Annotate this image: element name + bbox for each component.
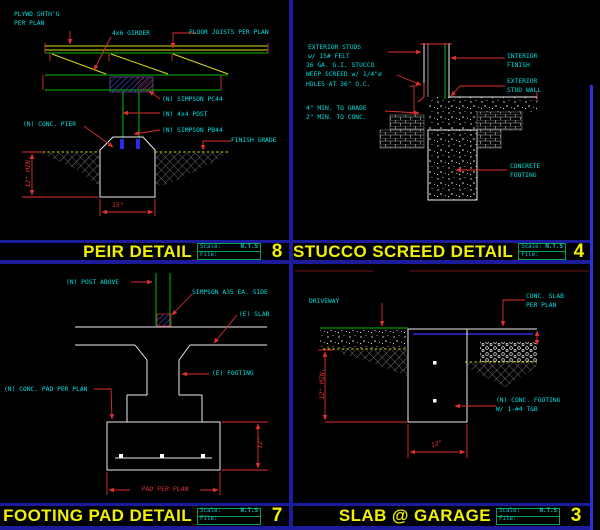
- driveway-side: [320, 328, 408, 376]
- label-finish-grade: FINISH GRADE: [231, 136, 277, 145]
- detail-number: 7: [266, 505, 288, 527]
- post-and-hardware: [156, 273, 171, 326]
- sheet-right-border: [590, 85, 593, 530]
- rebar-dot: [433, 399, 437, 403]
- panel-footing-pad: (N) POST ABOVE SIMPSON A35 EA. SIDE (E) …: [0, 268, 290, 503]
- floor-framing: [43, 43, 268, 90]
- anchor-bolt: [136, 139, 140, 149]
- file-label: File:: [521, 253, 538, 259]
- quadrant-divider: [289, 0, 293, 530]
- scale-value: N.T.S: [241, 509, 258, 515]
- dim-pad-width: PAD PER PLAN: [130, 486, 200, 494]
- label-driveway: DRIVEWAY: [309, 297, 339, 306]
- label-existing-footing: (E) FOOTING: [212, 369, 254, 378]
- panel-pier: PLYWD SHTH'G PER PLAN 4x6 GIRDER FLOOR J…: [0, 0, 290, 240]
- scale-label: Scale:: [200, 245, 221, 251]
- label-post-above: (N) POST ABOVE: [66, 278, 119, 287]
- concrete-pad: [107, 422, 220, 470]
- scale-value: N.T.S: [545, 245, 562, 251]
- file-label: File:: [200, 253, 217, 259]
- label-exterior-studs: EXTERIOR STUDS w/ 15# FELT: [308, 43, 361, 62]
- post-cap-section: [110, 77, 153, 138]
- rebar-dot: [119, 454, 123, 458]
- file-label: File:: [499, 517, 516, 523]
- footing-stem: [408, 329, 467, 422]
- scale-box: Scale:N.T.S File:: [518, 243, 566, 260]
- rebar-dot: [433, 361, 437, 365]
- label-grade-clearance: 4" MIN. TO GRADE 2" MIN. TO CONC.: [306, 104, 367, 123]
- label-conc-slab: CONC. SLAB PER PLAN: [526, 292, 564, 311]
- dim-pier-depth: 12" MIN.: [25, 147, 33, 197]
- anchor-bolt: [120, 139, 124, 149]
- scale-value: N.T.S: [241, 245, 258, 251]
- detail-title: PEIR DETAIL: [83, 242, 192, 262]
- scale-label: Scale:: [521, 245, 542, 251]
- titlebar-footing-pad: FOOTING PAD DETAIL Scale:N.T.S File: 7: [0, 503, 293, 530]
- scale-label: Scale:: [200, 509, 221, 515]
- slab-and-footing: [75, 327, 267, 470]
- label-joists: FLOOR JOISTS PER PLAN: [189, 28, 269, 37]
- titlebar-slab-garage: SLAB @ GARAGE Scale:N.T.S File: 3: [293, 503, 592, 530]
- dim-pier-width: 15": [112, 202, 124, 210]
- a35-clip: [157, 314, 171, 326]
- scale-label: Scale:: [499, 509, 520, 515]
- gravel-base: [480, 342, 537, 362]
- label-conc-pier: (N) CONC. PIER: [23, 120, 76, 129]
- label-pc44: (N) SIMPSON PC44: [162, 95, 223, 104]
- label-conc-pad: (N) CONC. PAD PER PLAN: [4, 385, 87, 394]
- label-plywood: PLYWD SHTH'G PER PLAN: [14, 10, 60, 29]
- file-label: File:: [200, 517, 217, 523]
- detail-title: STUCCO SCREED DETAIL: [293, 242, 513, 262]
- label-girder: 4x6 GIRDER: [112, 29, 150, 38]
- rebar-dot: [201, 454, 205, 458]
- grade-and-earth: [38, 152, 228, 186]
- scale-box: Scale:N.T.S File:: [197, 508, 261, 525]
- label-a35: SIMPSON A35 EA. SIDE: [192, 288, 268, 297]
- leader-lines: [94, 282, 237, 419]
- cad-sheet: PLYWD SHTH'G PER PLAN 4x6 GIRDER FLOOR J…: [0, 0, 600, 530]
- dim-pad-depth: 12": [257, 430, 265, 456]
- dim-footing-depth: 12" MIN.: [319, 362, 327, 406]
- rebar-dot: [160, 454, 164, 458]
- detail-number: 4: [571, 241, 587, 263]
- panel-stucco: EXTERIOR STUDS w/ 15# FELT 26 GA. G.I. S…: [293, 0, 592, 240]
- detail-title: FOOTING PAD DETAIL: [3, 506, 192, 526]
- label-stud-wall: EXTERIOR STUD WALL: [507, 77, 541, 96]
- label-interior-finish: INTERIOR FINISH: [507, 52, 537, 71]
- scale-box: Scale:N.T.S File:: [197, 243, 261, 260]
- label-post: (N) 4x4 POST: [162, 110, 208, 119]
- titlebar-pier: PEIR DETAIL Scale:N.T.S File: 8: [0, 240, 293, 264]
- pier-outline: [100, 137, 155, 197]
- label-concrete-footing: CONCRETE FOOTING: [510, 162, 540, 181]
- panel-slab-garage: DRIVEWAY CONC. SLAB PER PLAN (N) CONC. F…: [293, 268, 592, 503]
- detail-title: SLAB @ GARAGE: [339, 506, 491, 526]
- detail-number: 8: [266, 241, 288, 263]
- label-weep-screed: 26 GA. G.I. STUCCO WEEP SCREED w/ 1/4"ø …: [306, 61, 382, 89]
- label-existing-slab: (E) SLAB: [239, 310, 269, 319]
- scale-value: N.T.S: [540, 509, 557, 515]
- label-pb44: (N) SIMPSON PB44: [162, 126, 223, 135]
- detail-number: 3: [565, 505, 587, 527]
- scale-box: Scale:N.T.S File:: [496, 508, 560, 525]
- garage-slab-side: [408, 329, 537, 387]
- titlebar-stucco: STUCCO SCREED DETAIL Scale:N.T.S File: 4: [293, 240, 592, 264]
- label-conc-footing: (N) CONC. FOOTING W/ 1-#4 T&B: [496, 396, 560, 415]
- weep-screed: [418, 83, 424, 102]
